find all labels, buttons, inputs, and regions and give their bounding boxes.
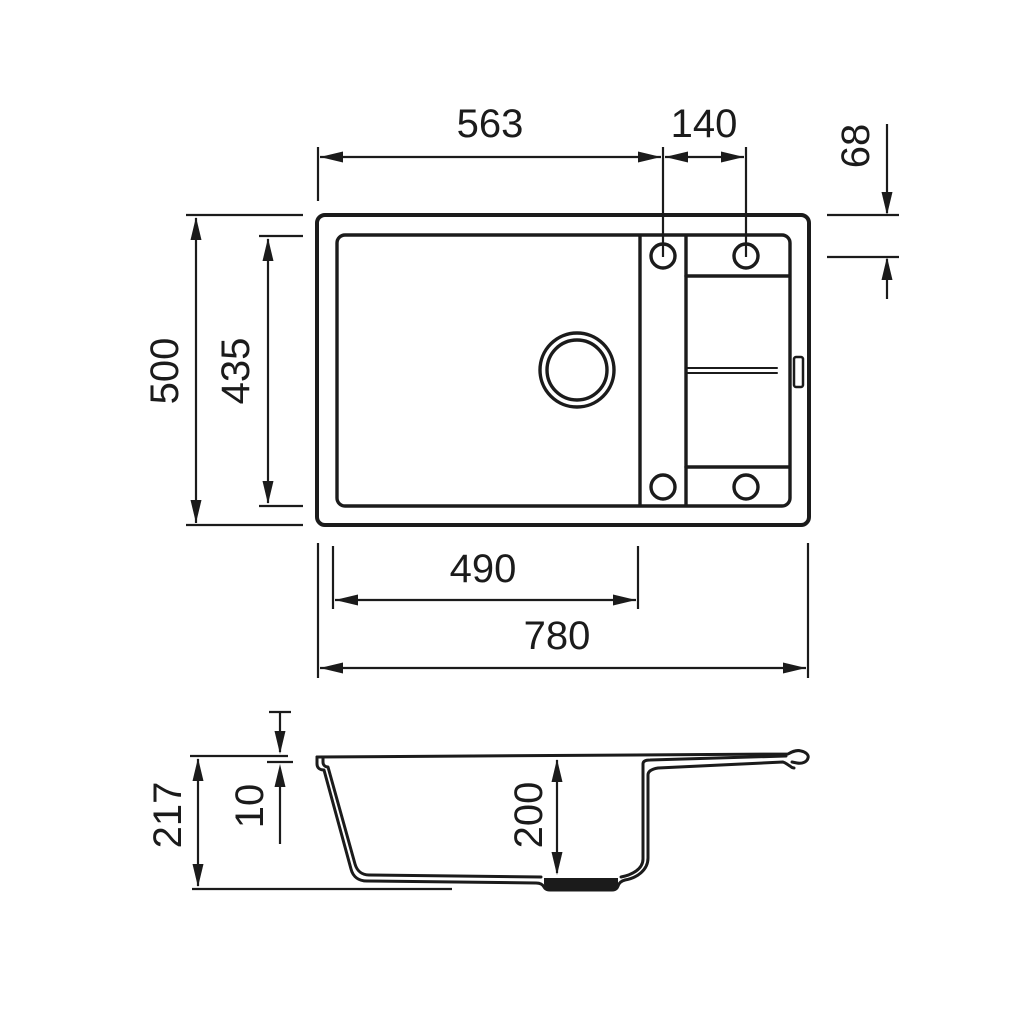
dim-label-200: 200: [507, 782, 551, 849]
arrowhead: [335, 595, 358, 606]
arrowhead: [783, 663, 806, 674]
arrowhead: [552, 759, 563, 782]
arrowhead: [882, 257, 893, 280]
arrowhead: [193, 864, 204, 887]
arrowhead: [882, 192, 893, 215]
arrowhead: [552, 852, 563, 875]
dim-217-overall-height: 217: [146, 756, 452, 889]
top-view: [317, 215, 809, 525]
section-inner-right-profile: [621, 756, 786, 877]
arrowhead: [191, 500, 202, 523]
dim-label-435: 435: [214, 338, 258, 405]
arrowhead: [275, 731, 286, 754]
arrowhead: [263, 238, 274, 261]
arrowhead: [275, 764, 286, 787]
drain-circle-inner: [547, 340, 607, 400]
dim-label-500: 500: [143, 338, 187, 405]
faucet-hole-bottom-right: [734, 475, 758, 499]
dim-140-hole-spacing: 140: [665, 102, 744, 163]
dim-490-bowl-width: 490: [333, 546, 638, 609]
dim-label-563: 563: [457, 102, 524, 146]
dim-200-bowl-depth: 200: [507, 759, 563, 875]
arrowhead: [665, 152, 688, 163]
arrowhead: [263, 481, 274, 504]
dim-label-140: 140: [671, 102, 738, 146]
arrowhead: [320, 663, 343, 674]
dim-label-68: 68: [834, 124, 878, 169]
dim-10-rim-thickness: 10: [228, 712, 293, 844]
arrowhead: [191, 217, 202, 240]
arrowhead: [320, 152, 343, 163]
overflow-handle: [794, 357, 803, 387]
dim-label-217: 217: [146, 782, 190, 849]
dim-label-780: 780: [524, 614, 591, 658]
dim-435-inner-depth: 435: [214, 236, 303, 506]
dim-label-490: 490: [450, 547, 517, 591]
arrowhead: [638, 152, 661, 163]
dim-68-edge-to-hole: 68: [827, 124, 899, 299]
technical-drawing-canvas: 563 140 68 500 435 490: [0, 0, 1024, 1024]
dim-label-10: 10: [228, 784, 272, 829]
faucet-hole-bottom-left: [651, 475, 675, 499]
drain-recess-band: [544, 878, 618, 889]
drain-circle-outer: [540, 333, 614, 407]
arrowhead: [721, 152, 744, 163]
dim-780-overall-width: 780: [318, 543, 808, 678]
arrowhead: [193, 758, 204, 781]
arrowhead: [613, 595, 636, 606]
sink-dimension-diagram: 563 140 68 500 435 490: [0, 0, 1024, 1024]
side-view: [317, 751, 808, 890]
